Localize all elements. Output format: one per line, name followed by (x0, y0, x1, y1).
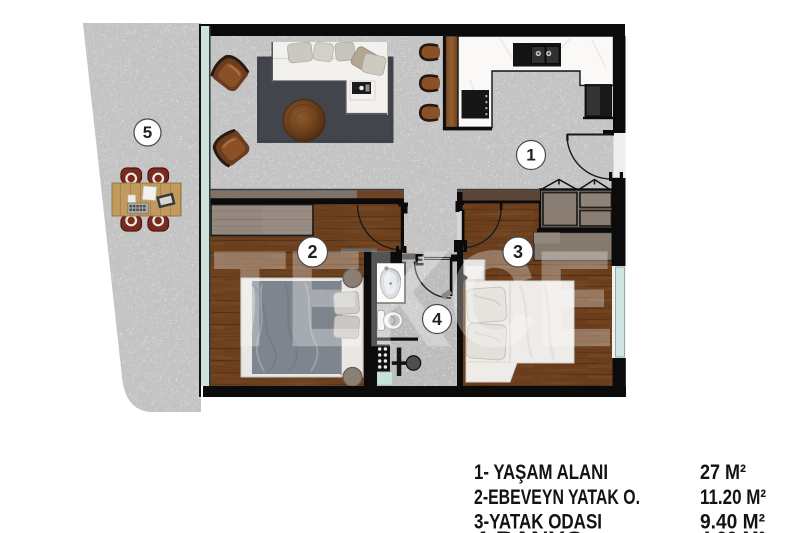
svg-text:11.20 M²: 11.20 M² (700, 486, 766, 509)
svg-text:5: 5 (143, 123, 152, 142)
svg-text:2: 2 (307, 242, 317, 262)
svg-text:2-EBEVEYN YATAK O.: 2-EBEVEYN YATAK O. (474, 486, 640, 509)
svg-text:3: 3 (513, 242, 523, 262)
svg-text:4-BANYO: 4-BANYO (474, 528, 584, 533)
svg-text:27 M²: 27 M² (700, 461, 746, 484)
svg-text:1: 1 (526, 146, 535, 165)
svg-text:4: 4 (432, 309, 442, 329)
svg-text:1- YAŞAM ALANI: 1- YAŞAM ALANI (474, 461, 608, 484)
svg-text:TEKCE: TEKCE (214, 224, 614, 374)
svg-text:4.60 M²: 4.60 M² (700, 528, 765, 533)
